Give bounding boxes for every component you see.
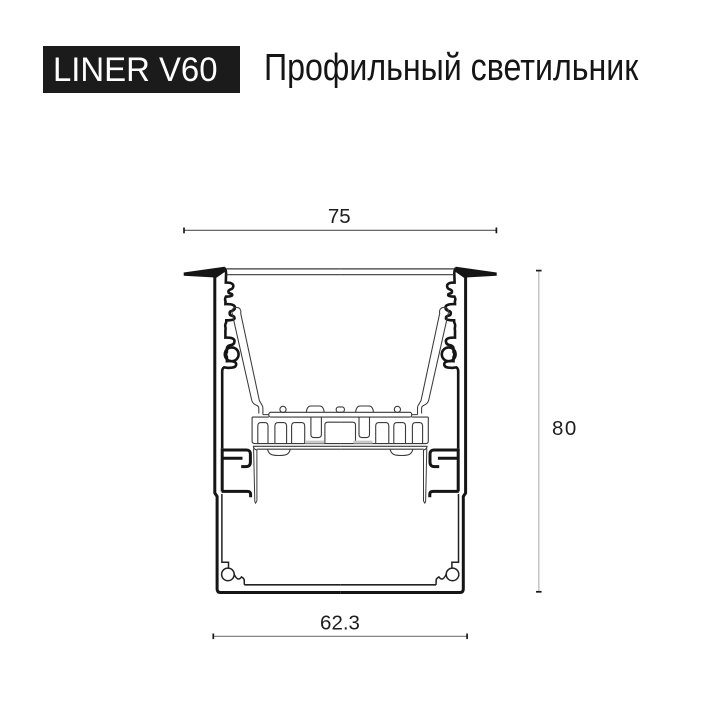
svg-text:80: 80 (552, 417, 578, 440)
svg-text:75: 75 (328, 205, 351, 228)
svg-text:62.3: 62.3 (320, 612, 360, 635)
